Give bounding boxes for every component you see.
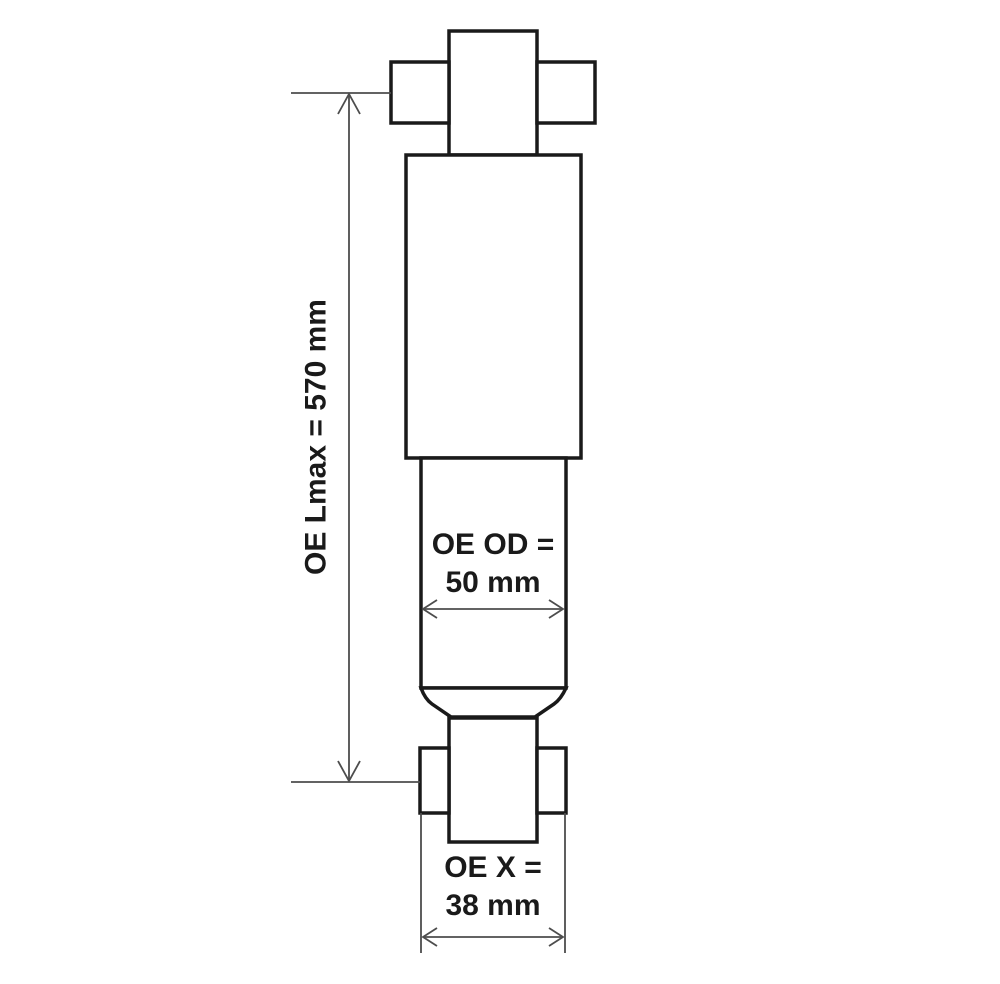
upper-mount-left-pin: [391, 62, 449, 123]
shock-absorber-diagram: OE Lmax = 570 mm OE OD = 50 mm OE X = 38…: [0, 0, 1000, 984]
x-dimension-label-line2: 38 mm: [445, 889, 540, 922]
od-dimension-label-line2: 50 mm: [445, 566, 540, 599]
od-dimension-label-line1: OE OD =: [432, 528, 555, 561]
lower-mount-right-pin: [537, 748, 566, 813]
shock-absorber-outline: [391, 31, 595, 842]
lower-mount-left-pin: [420, 748, 449, 813]
x-dimension-label-line1: OE X =: [444, 851, 542, 884]
lower-mount-body: [449, 718, 537, 842]
upper-mount-body: [449, 31, 537, 155]
technical-drawing-canvas: OE Lmax = 570 mm OE OD = 50 mm OE X = 38…: [0, 0, 1000, 984]
lmax-dimension-label: OE Lmax = 570 mm: [300, 299, 333, 575]
dust-cover-tube: [406, 155, 581, 458]
lower-taper: [421, 688, 566, 717]
upper-mount-right-pin: [537, 62, 595, 123]
